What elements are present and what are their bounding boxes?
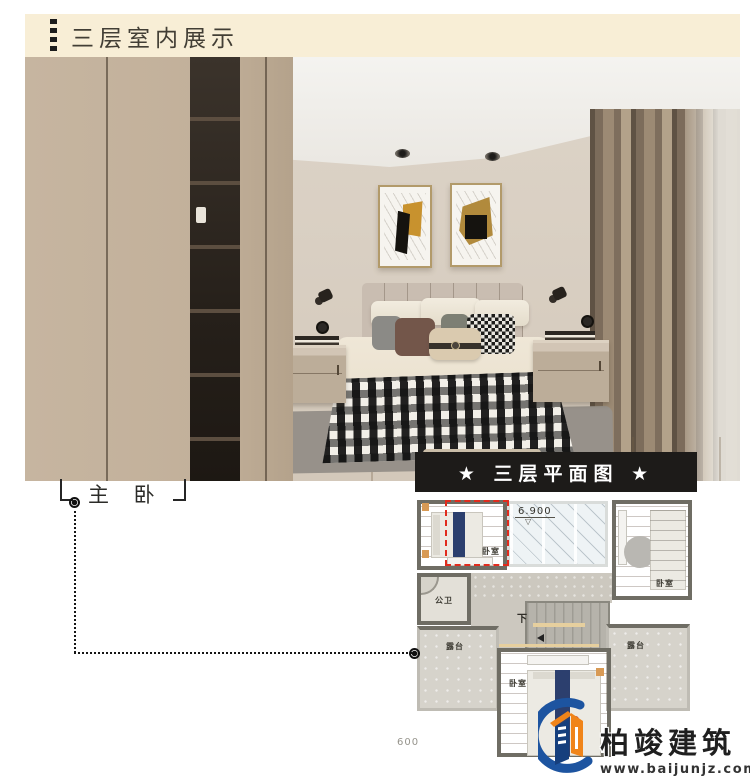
wall-sconce-right bbox=[549, 288, 569, 304]
page: 三层室内展示 bbox=[0, 0, 750, 783]
room-label: 卧室 bbox=[656, 578, 674, 589]
alarm-clock bbox=[316, 321, 329, 334]
logo-website: www.baijunjz.com bbox=[600, 762, 750, 777]
nightstand-right bbox=[533, 340, 609, 402]
connector-dot-end bbox=[409, 648, 420, 659]
sheer-curtain bbox=[685, 109, 740, 481]
elevation-partial-label: 600 bbox=[397, 737, 419, 748]
connector-line-vertical bbox=[74, 511, 76, 653]
wall-art-right bbox=[450, 183, 502, 267]
connector-line-horizontal bbox=[74, 652, 412, 654]
brand-logo: 柏竣建筑 www.baijunjz.com bbox=[538, 697, 746, 781]
logo-building-icon bbox=[538, 697, 596, 779]
wall-art-left bbox=[378, 185, 432, 268]
stairs-down-label: 下 bbox=[517, 610, 527, 625]
connector-dot-start bbox=[69, 497, 80, 508]
alarm-clock bbox=[581, 315, 594, 328]
section-header: 三层室内展示 bbox=[25, 14, 740, 57]
logo-name: 柏竣建筑 bbox=[600, 728, 750, 760]
pillow-bolster bbox=[429, 328, 481, 360]
wall-sconce-left bbox=[315, 290, 335, 306]
ceiling-spotlight bbox=[485, 152, 500, 161]
callout-bracket-right bbox=[173, 479, 186, 501]
room-label: 露台 bbox=[446, 641, 464, 652]
stairs-arrow bbox=[533, 634, 544, 642]
books-stack bbox=[295, 336, 339, 345]
floorplan-banner: ★ 三层平面图 ★ bbox=[415, 452, 697, 492]
elevation-label: 6.900 bbox=[515, 506, 555, 518]
room-callout-label: 主 卧 bbox=[88, 479, 164, 509]
dashed-bar-icon bbox=[50, 19, 57, 52]
bedroom-photo bbox=[25, 57, 740, 481]
ceiling-spotlight bbox=[395, 149, 410, 158]
plan-bathroom: 公卫 bbox=[417, 573, 471, 625]
wardrobe-open-shelves bbox=[190, 57, 240, 481]
elevation-triangle: ▽ bbox=[525, 517, 531, 526]
highlight-red-dashed-box bbox=[445, 500, 509, 566]
page-title: 三层室内展示 bbox=[71, 19, 239, 53]
plan-bedroom-right: 卧室 bbox=[612, 500, 692, 600]
room-label: 露台 bbox=[627, 640, 645, 651]
room-label: 公卫 bbox=[435, 595, 453, 606]
room-label: 卧室 bbox=[509, 678, 527, 689]
wardrobe bbox=[25, 57, 293, 481]
plan-corridor bbox=[471, 573, 612, 603]
books-stack bbox=[545, 331, 595, 340]
plan-terrace-left: 露台 bbox=[417, 626, 499, 711]
